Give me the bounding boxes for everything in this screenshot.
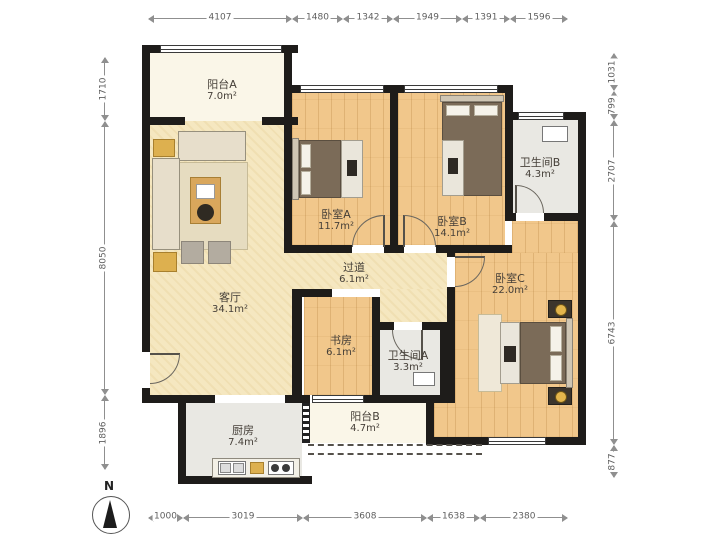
bathroom-b-sink — [542, 126, 568, 142]
room-name: 厨房 — [203, 424, 283, 437]
wall — [505, 85, 513, 221]
room-name: 书房 — [301, 334, 381, 347]
dimension-value: 1638 — [440, 513, 467, 522]
wall — [447, 287, 455, 403]
room-name: 阳台A — [182, 78, 262, 91]
room-label-balcony-a: 阳台A 7.0m² — [182, 78, 262, 103]
bed-a-pillow — [301, 171, 311, 195]
balcony-b-railing-line — [308, 444, 482, 446]
dimension-value: 1949 — [414, 14, 441, 23]
bed-c-tv — [504, 346, 516, 362]
dimension-value: 1710 — [100, 76, 109, 103]
window-bedroom-b — [404, 85, 498, 93]
dimension-bottom: 3608 — [303, 510, 427, 524]
dimension-bottom: 3019 — [183, 510, 303, 524]
dimension-top: 1480 — [292, 11, 343, 25]
dimension-value: 1031 — [609, 59, 618, 86]
window-bedroom-a — [300, 85, 384, 93]
balcony-b-railing-line — [308, 453, 482, 455]
bed-b-pillow — [446, 105, 470, 116]
bed-c-pillow — [550, 326, 562, 352]
dimension-top: 4107 — [148, 11, 292, 25]
bed-c-headboard — [566, 318, 573, 388]
wall — [178, 395, 186, 484]
bedroom-c-rug — [478, 314, 502, 392]
wall — [142, 388, 150, 403]
side-table — [153, 139, 175, 157]
burner — [282, 464, 290, 472]
room-name: 卧室A — [296, 208, 376, 221]
dimension-value: 1896 — [100, 419, 109, 446]
dimension-right: 799 — [606, 91, 620, 120]
wall — [426, 395, 434, 445]
room-area: 4.3m² — [500, 169, 580, 181]
floor-hallway-south — [380, 289, 447, 322]
dimension-right: 877 — [606, 445, 620, 478]
room-label-hallway: 过道 6.1m² — [314, 261, 394, 286]
dimension-value: 2707 — [609, 157, 618, 184]
bed-b-tv — [448, 158, 458, 174]
kitchen-sink-basin — [233, 463, 244, 473]
dimension-left: 1896 — [97, 395, 111, 470]
room-name: 卫生间B — [500, 156, 580, 169]
table-decor-tray — [196, 184, 215, 199]
wall — [284, 45, 292, 253]
dimension-bottom: 1638 — [427, 510, 480, 524]
floor-plan: 阳台A 7.0m² 客厅 34.1m² 卧室A 11.7m² 卧室B 14.1m… — [0, 0, 720, 540]
kitchen-sink-basin — [220, 463, 231, 473]
dimension-value: 3608 — [352, 513, 379, 522]
compass-needle-icon — [103, 500, 117, 528]
floor-hallway-link — [292, 253, 302, 289]
dimension-value: 1480 — [304, 14, 331, 23]
room-label-bedroom-b: 卧室B 14.1m² — [412, 215, 492, 240]
room-name: 卧室B — [412, 215, 492, 228]
room-name: 卫生间A — [368, 349, 448, 362]
dimension-value: 799 — [609, 95, 618, 116]
burner — [271, 464, 279, 472]
window-balcony-a — [160, 45, 282, 53]
window-bedroom-c — [488, 437, 546, 445]
room-area: 34.1m² — [190, 304, 270, 316]
dimension-value: 1342 — [355, 14, 382, 23]
side-table — [153, 252, 177, 272]
window-balcony-b-side — [302, 403, 310, 443]
sofa-left — [152, 158, 180, 250]
bed-a-tv — [347, 160, 357, 176]
wall — [390, 85, 398, 253]
bed-a-pillow — [301, 144, 311, 168]
wall — [447, 245, 455, 257]
room-area: 4.7m² — [325, 423, 405, 435]
room-area: 14.1m² — [412, 228, 492, 240]
room-area: 6.1m² — [314, 274, 394, 286]
room-name: 客厅 — [190, 291, 270, 304]
room-name: 过道 — [314, 261, 394, 274]
wall — [262, 117, 298, 125]
room-label-bedroom-c: 卧室C 22.0m² — [470, 272, 550, 297]
floor-bedroom-c-upper — [512, 221, 578, 253]
dimension-value: 1596 — [526, 14, 553, 23]
dimension-value: 8050 — [100, 245, 109, 272]
room-area: 3.3m² — [368, 362, 448, 374]
room-label-bathroom-a: 卫生间A 3.3m² — [368, 349, 448, 374]
kitchen-board — [250, 462, 264, 474]
dimension-value: 3019 — [230, 513, 257, 522]
north-label: N — [104, 479, 114, 493]
dimension-top: 1342 — [343, 11, 393, 25]
floor-bedroom-c-lower — [434, 403, 455, 437]
dimension-bottom: 1000 — [148, 510, 183, 524]
sofa-top — [178, 131, 246, 161]
bed-a-headboard — [292, 138, 299, 200]
window-bathroom-b — [518, 112, 564, 120]
ottoman — [181, 241, 204, 264]
dimension-value: 2380 — [511, 513, 538, 522]
room-area: 11.7m² — [296, 221, 376, 233]
dimension-bottom: 2380 — [480, 510, 568, 524]
room-name: 阳台B — [325, 410, 405, 423]
dimension-top: 1391 — [462, 11, 510, 25]
room-label-balcony-b: 阳台B 4.7m² — [325, 410, 405, 435]
room-name: 卧室C — [470, 272, 550, 285]
dimension-value: 4107 — [207, 14, 234, 23]
wall — [364, 395, 455, 403]
dimension-top: 1596 — [510, 11, 568, 25]
dimension-left: 8050 — [97, 121, 111, 395]
wall — [142, 45, 150, 352]
room-area: 7.0m² — [182, 91, 262, 103]
bed-b-pillow — [474, 105, 498, 116]
room-label-living: 客厅 34.1m² — [190, 291, 270, 316]
room-label-bathroom-b: 卫生间B 4.3m² — [500, 156, 580, 181]
dimension-value: 6743 — [609, 320, 618, 347]
lamp — [555, 304, 567, 316]
dimension-top: 1949 — [393, 11, 462, 25]
lamp — [555, 391, 567, 403]
dimension-value: 1000 — [152, 513, 179, 522]
dimension-left: 1710 — [97, 57, 111, 121]
room-area: 22.0m² — [470, 285, 550, 297]
dimension-right: 2707 — [606, 120, 620, 221]
room-label-bedroom-a: 卧室A 11.7m² — [296, 208, 376, 233]
window-balcony-b — [312, 395, 364, 403]
dimension-value: 877 — [609, 451, 618, 472]
dimension-right: 6743 — [606, 221, 620, 445]
dimension-right: 1031 — [606, 53, 620, 91]
room-label-kitchen: 厨房 7.4m² — [203, 424, 283, 449]
wall — [284, 245, 352, 253]
bed-c-pillow — [550, 355, 562, 381]
bed-b-headboard — [440, 95, 504, 102]
table-decor-vase — [197, 204, 214, 221]
room-area: 7.4m² — [203, 437, 283, 449]
ottoman — [208, 241, 231, 264]
dimension-value: 1391 — [473, 14, 500, 23]
